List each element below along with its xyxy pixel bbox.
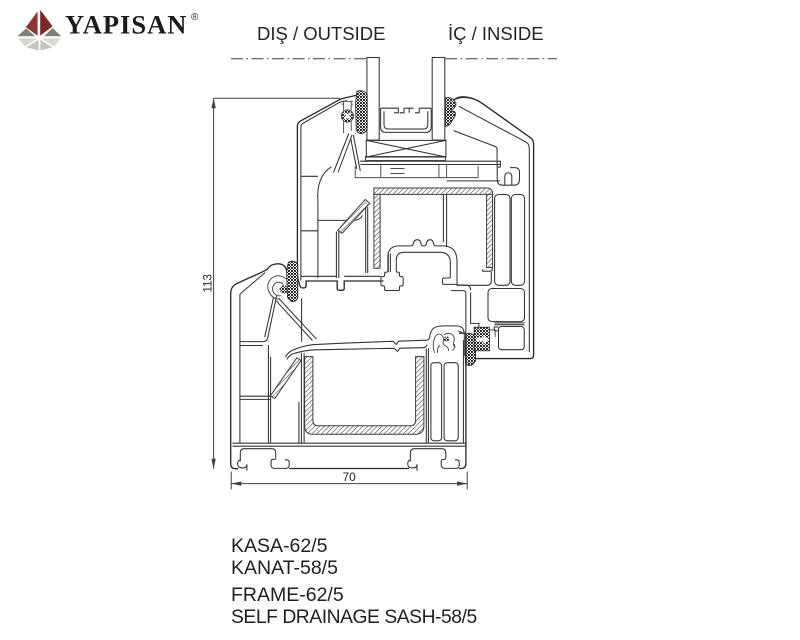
svg-text:KANAT-58/5: KANAT-58/5 xyxy=(231,557,338,579)
svg-text:FRAME-62/5: FRAME-62/5 xyxy=(231,584,344,606)
svg-text:DIŞ / OUTSIDE: DIŞ / OUTSIDE xyxy=(257,23,386,44)
svg-text:®: ® xyxy=(191,12,199,23)
svg-text:İÇ / INSIDE: İÇ / INSIDE xyxy=(448,23,544,44)
svg-text:KASA-62/5: KASA-62/5 xyxy=(231,535,328,557)
svg-text:SELF DRAINAGE SASH-58/5: SELF DRAINAGE SASH-58/5 xyxy=(231,607,477,628)
svg-text:YAPISAN: YAPISAN xyxy=(65,10,187,40)
svg-text:70: 70 xyxy=(343,470,357,484)
svg-text:113: 113 xyxy=(203,274,215,292)
